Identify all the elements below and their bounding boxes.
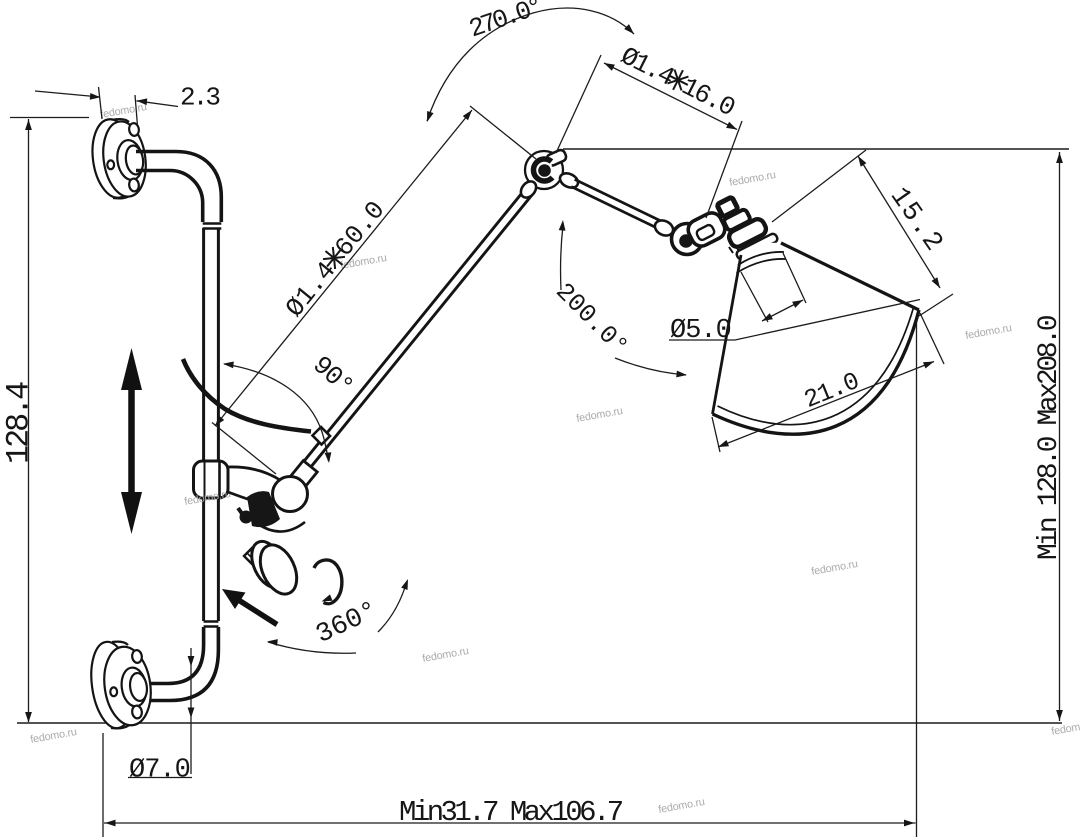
svg-text:Min31.7 Max106.7: Min31.7 Max106.7: [399, 796, 623, 829]
svg-text:Ø7.0: Ø7.0: [129, 756, 190, 786]
svg-text:128.4: 128.4: [1, 382, 38, 464]
svg-text:2.3: 2.3: [180, 83, 219, 113]
svg-text:Min 128.0 Max208.0: Min 128.0 Max208.0: [1034, 315, 1065, 560]
svg-text:Ø5.0: Ø5.0: [670, 316, 731, 346]
